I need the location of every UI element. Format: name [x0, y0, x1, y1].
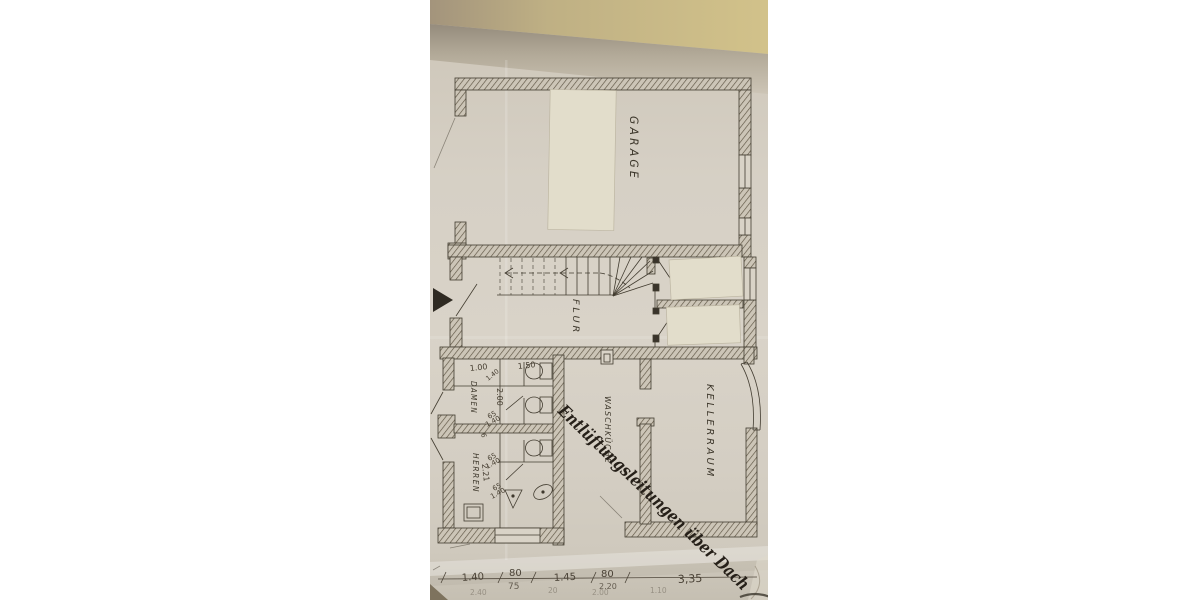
- damen-label: DAMEN: [469, 381, 478, 414]
- floorplan-photo: GARAGE FLUR WASCHKÜCHE KELLERRAUM DAMEN …: [0, 0, 1200, 600]
- dim-faint-110: 1.10: [650, 586, 667, 595]
- screenshot-floorplan-photo: GARAGE FLUR WASCHKÜCHE KELLERRAUM DAMEN …: [0, 0, 1200, 600]
- dim-221: 2.21: [480, 463, 491, 482]
- dim-bottom-80b: 80: [601, 569, 614, 580]
- dim-100: 1.00: [469, 362, 488, 373]
- dim-faint-20: 20: [548, 586, 558, 595]
- door-frame-symbol: [601, 350, 613, 364]
- dim-faint-200: 2.00: [592, 588, 609, 597]
- dim-200: 2.00: [495, 388, 504, 406]
- flur-label: FLUR: [570, 299, 580, 335]
- garage-label: GARAGE: [627, 116, 641, 181]
- dim-150: 1.50: [517, 360, 536, 371]
- kellerraum-label: KELLERRAUM: [704, 384, 715, 479]
- dim-bottom-140: 1.40: [461, 571, 484, 584]
- herren-label: HERREN: [471, 453, 480, 493]
- dim-bottom-335: 3,35: [677, 572, 702, 586]
- dim-bottom-75: 75: [508, 582, 519, 592]
- dim-bottom-80a: 80: [509, 568, 522, 579]
- dim-bottom-145: 1.45: [554, 572, 577, 584]
- dim-faint-240: 2.40: [470, 588, 487, 597]
